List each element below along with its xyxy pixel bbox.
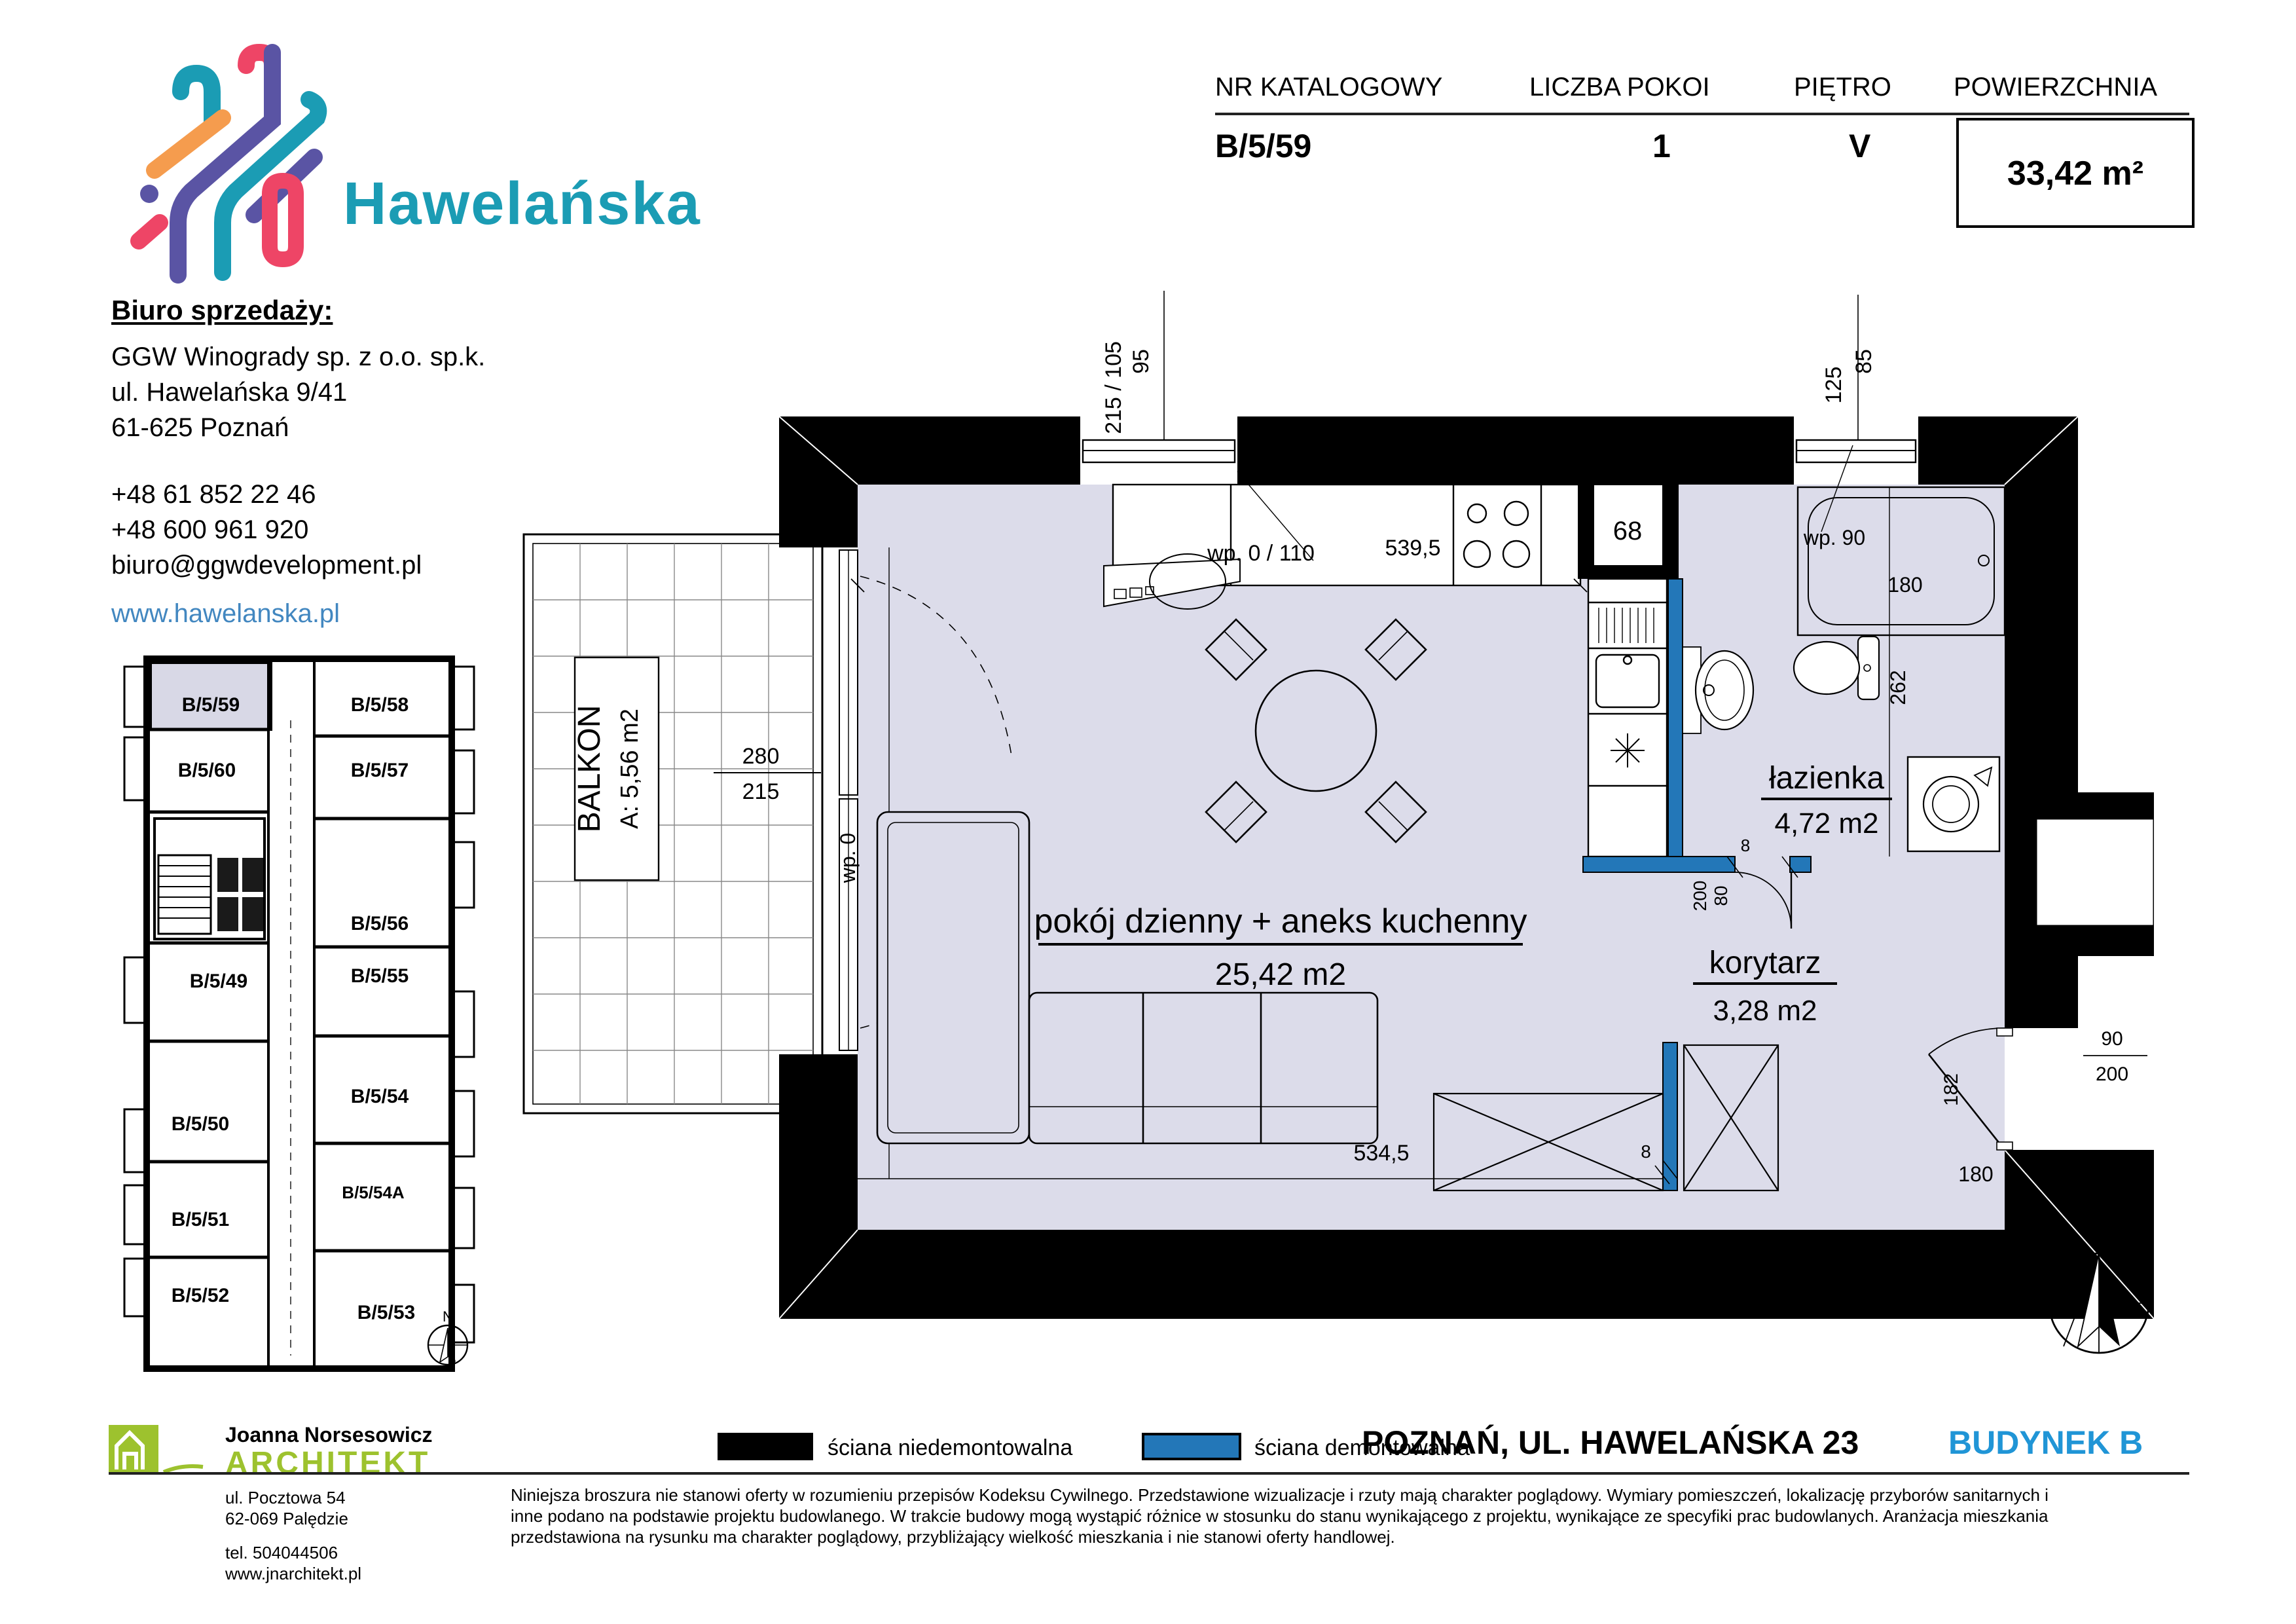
washbasin-icon bbox=[1683, 647, 1753, 733]
disclaimer-line1: Niniejsza broszura nie stanowi oferty w … bbox=[511, 1485, 2189, 1506]
architect-title: ARCHITEKT bbox=[225, 1446, 430, 1483]
catalog-number: B/5/59 bbox=[1215, 128, 1311, 166]
dim-window1-inner: 215 / 105 bbox=[1101, 341, 1126, 434]
company-name: GGW Winogrady sp. z o.o. sp.k. bbox=[111, 341, 485, 376]
sales-office-address: GGW Winogrady sp. z o.o. sp.k. ul. Hawel… bbox=[111, 341, 485, 447]
architect-contact: tel. 504044506 www.jnarchitekt.pl bbox=[225, 1543, 361, 1585]
washing-machine-icon bbox=[1908, 757, 1999, 851]
brand-name: Hawelańska bbox=[343, 168, 701, 238]
info-table-rule bbox=[1215, 113, 2189, 115]
dim-balcony-door-top: 280 bbox=[742, 744, 780, 769]
living-room-area: 25,42 m2 bbox=[1215, 957, 1346, 992]
mini-unit-label[interactable]: B/5/52 bbox=[172, 1285, 229, 1306]
bathtub-icon bbox=[1798, 487, 2005, 635]
email-link[interactable]: biuro@ggwdevelopment.pl bbox=[111, 549, 422, 584]
dim-entry-width: 180 bbox=[1958, 1162, 1993, 1186]
mini-unit-label[interactable]: B/5/56 bbox=[351, 913, 409, 934]
wardrobe-icon bbox=[1434, 1094, 1663, 1190]
disclaimer-text: Niniejsza broszura nie stanowi oferty w … bbox=[511, 1485, 2189, 1548]
sales-office-heading: Biuro sprzedaży: bbox=[111, 296, 333, 327]
legend-non-demountable: ściana niedemontowalna bbox=[828, 1435, 1072, 1462]
architect-name: Joanna Norsesowicz bbox=[225, 1425, 433, 1449]
bathroom-name: łazienka bbox=[1769, 761, 1884, 796]
window-bathroom bbox=[1794, 416, 1918, 485]
architect-website[interactable]: www.jnarchitekt.pl bbox=[225, 1564, 361, 1585]
kitchen-sink-run bbox=[1588, 579, 1667, 857]
mini-balconies-left bbox=[124, 667, 147, 1316]
hawelanska-logo-icon bbox=[115, 37, 338, 299]
disclaimer-line2: inne podano na podstawie projektu budowl… bbox=[511, 1506, 2189, 1527]
architect-address: ul. Pocztowa 54 62-069 Palędzie bbox=[225, 1488, 348, 1530]
corridor-area: 3,28 m2 bbox=[1713, 995, 1817, 1027]
dim-entry-door-w: 90 bbox=[2101, 1028, 2123, 1050]
architect-street: ul. Pocztowa 54 bbox=[225, 1488, 348, 1509]
mini-unit-label[interactable]: B/5/59 bbox=[182, 694, 240, 716]
company-street: ul. Hawelańska 9/41 bbox=[111, 376, 485, 411]
wardrobe-icon bbox=[1684, 1045, 1778, 1190]
info-col2-label: LICZBA POKOI bbox=[1529, 73, 1710, 103]
website-link[interactable]: www.hawelanska.pl bbox=[111, 600, 340, 630]
mini-unit-label[interactable]: B/5/54 bbox=[351, 1086, 409, 1107]
architect-phone: tel. 504044506 bbox=[225, 1543, 361, 1564]
legend-swatch-solid-wall bbox=[718, 1433, 813, 1460]
disclaimer-line3: przedstawiona na rysunku ma charakter po… bbox=[511, 1527, 2189, 1548]
info-col4-label: POWIERZCHNIA bbox=[1954, 73, 2157, 103]
mini-unit-label[interactable]: B/5/57 bbox=[351, 760, 409, 781]
dim-window1-outer: 95 bbox=[1129, 349, 1154, 374]
company-city: 61-625 Poznań bbox=[111, 411, 485, 447]
corridor-name: korytarz bbox=[1709, 946, 1821, 980]
floor-number: V bbox=[1849, 128, 1870, 166]
mini-unit-label[interactable]: B/5/58 bbox=[351, 694, 409, 716]
note-window-bath: wp. 90 bbox=[1803, 526, 1865, 549]
mini-unit-label[interactable]: B/5/50 bbox=[172, 1113, 229, 1135]
dim-bath-door-w: 80 bbox=[1711, 885, 1731, 906]
mini-compass-label: N bbox=[443, 1308, 453, 1325]
dim-bath-door-h: 200 bbox=[1690, 881, 1710, 912]
info-col3-label: PIĘTRO bbox=[1794, 73, 1891, 103]
dim-balcony-door-bottom: 215 bbox=[742, 779, 780, 804]
mini-unit-label[interactable]: B/5/60 bbox=[178, 760, 236, 781]
phone-2: +48 600 961 920 bbox=[111, 513, 422, 549]
project-location: POZNAŃ, UL. HAWELAŃSKA 23 bbox=[1362, 1425, 1859, 1463]
note-balcony-door: wp. 0 bbox=[836, 833, 860, 883]
mini-unit-label[interactable]: B/5/54A bbox=[342, 1183, 405, 1202]
wall-niche bbox=[2036, 819, 2154, 926]
footer-rule bbox=[109, 1472, 2189, 1475]
note-window-living: wp. 0 / 110 bbox=[1207, 541, 1315, 566]
mini-stair-core bbox=[155, 819, 264, 939]
dim-shaft: 68 bbox=[1613, 517, 1643, 545]
mini-balconies-right bbox=[452, 667, 474, 1342]
area-value-box: 33,42 m² bbox=[1956, 118, 2195, 228]
mini-unit-label[interactable]: B/5/49 bbox=[190, 970, 247, 992]
bathroom-area: 4,72 m2 bbox=[1775, 807, 1879, 840]
architect-logo-icon bbox=[109, 1425, 216, 1475]
dim-window2-inner: 125 bbox=[1821, 367, 1846, 404]
dim-entry-height: 182 bbox=[1941, 1073, 1962, 1106]
mini-unit-label[interactable]: B/5/51 bbox=[172, 1209, 229, 1230]
dim-room-width-top: 539,5 bbox=[1385, 536, 1440, 561]
building-name: BUDYNEK B bbox=[1948, 1425, 2143, 1463]
mini-unit-label[interactable]: B/5/55 bbox=[351, 965, 409, 987]
dim-bath-wall: 8 bbox=[1741, 836, 1750, 855]
living-room-name: pokój dzienny + aneks kuchenny bbox=[1034, 902, 1527, 940]
balcony-area: A: 5,56 m2 bbox=[616, 709, 644, 829]
legend-swatch-demountable-wall bbox=[1142, 1433, 1241, 1460]
dim-window2-outer: 85 bbox=[1851, 349, 1876, 374]
info-col1-label: NR KATALOGOWY bbox=[1215, 73, 1442, 103]
brochure-page: Hawelańska Biuro sprzedaży: GGW Winograd… bbox=[0, 0, 2295, 1624]
apartment-floor-plan: BALKON A: 5,56 m2 bbox=[517, 275, 2154, 1375]
balcony: BALKON A: 5,56 m2 bbox=[524, 534, 822, 1113]
dim-entry-door-h: 200 bbox=[2096, 1063, 2128, 1085]
balcony-name: BALKON bbox=[572, 705, 607, 833]
dim-bathtub: 180 bbox=[1887, 573, 1922, 597]
dim-wc-depth: 262 bbox=[1886, 670, 1910, 705]
rooms-count: 1 bbox=[1652, 128, 1671, 166]
compass-label: N bbox=[2086, 1209, 2111, 1247]
mini-unit-label[interactable]: B/5/53 bbox=[357, 1302, 415, 1323]
contact-block: +48 61 852 22 46 +48 600 961 920 biuro@g… bbox=[111, 478, 422, 584]
architect-city: 62-069 Palędzie bbox=[225, 1509, 348, 1530]
dim-wall-8: 8 bbox=[1641, 1141, 1651, 1162]
phone-1: +48 61 852 22 46 bbox=[111, 478, 422, 513]
dim-room-width-bottom: 534,5 bbox=[1353, 1141, 1409, 1166]
